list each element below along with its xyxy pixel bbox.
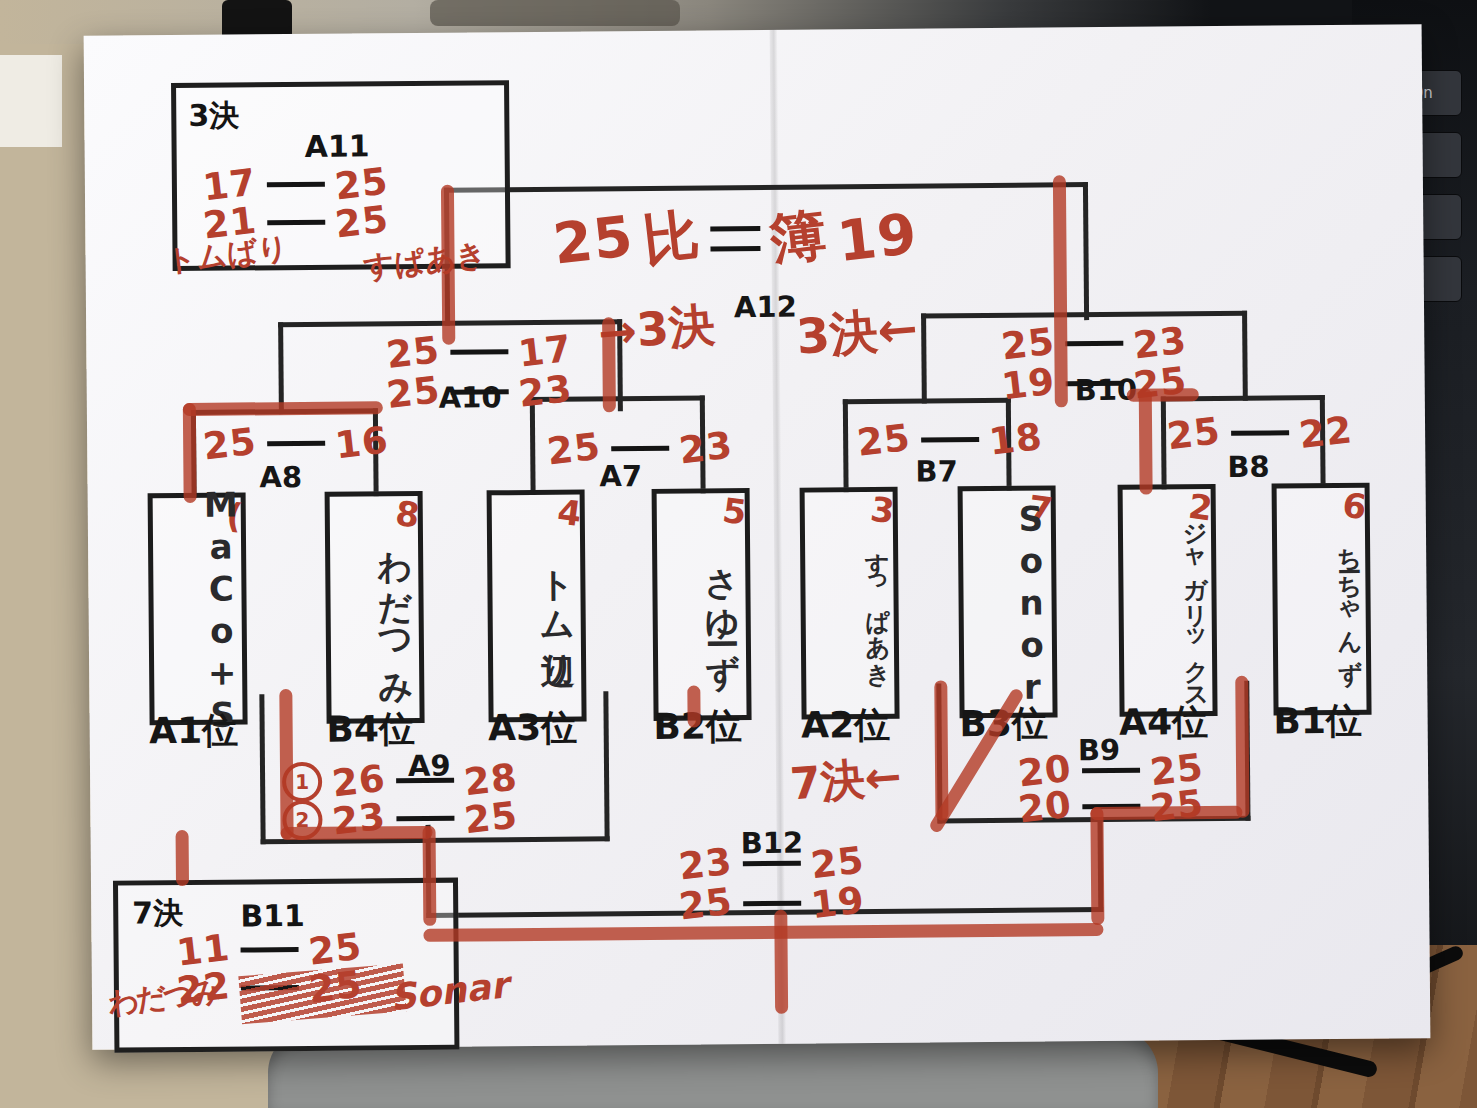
final-right-char: 簿 (766, 197, 831, 279)
score-value: 23 (676, 424, 734, 473)
marker-trace (281, 826, 433, 840)
final-left-char: 比 (639, 198, 704, 280)
rank-label-a2: A2位 (775, 701, 915, 751)
marker-trace (774, 910, 788, 1014)
team-name: Sonor (963, 498, 1053, 709)
score-value: 25 (855, 416, 913, 465)
keyboard-edge-shadow (430, 0, 680, 26)
rank-label-a4: A4位 (1093, 698, 1233, 748)
score-value: 25 (201, 420, 259, 469)
score-value: 25 (384, 368, 442, 417)
marker-trace (279, 689, 293, 839)
set-lines (710, 225, 760, 250)
marker-trace (1090, 807, 1104, 925)
team-box-jagarikkusu: 2 ジャガリックス (1118, 484, 1218, 717)
marker-trace (423, 923, 1103, 942)
score-value: 16 (332, 419, 390, 468)
team-box-chichanzu: 6 ちーちゃんず (1272, 483, 1372, 716)
score-value: 25 (545, 425, 603, 474)
rank-label-b1: B1位 (1247, 697, 1387, 747)
team-box-sayuzu: 5 さゆーず (652, 488, 752, 721)
score-a8: 25 16 (203, 421, 388, 466)
team-name: さゆーず (657, 501, 747, 712)
final-left-score: 25 (550, 203, 637, 277)
team-name: すっぱあき (805, 500, 895, 711)
marker-trace (176, 830, 189, 886)
score-value: 23 (516, 367, 574, 416)
match-label-a11: A11 (304, 128, 369, 164)
score-b12-set2: 25 19 (679, 881, 864, 926)
score-value: 19 (808, 878, 866, 927)
team-box-sonor: 7 Sonor (958, 485, 1058, 718)
third-place-note-right: 3決← (794, 296, 920, 369)
team-name: トム辺り (492, 503, 582, 714)
photo-of-tournament-bracket: PgDn ¥ む A12 A10 B10 A8 A7 B7 B8 A9 B9 B… (0, 0, 1477, 1108)
marker-trace (183, 403, 197, 503)
team-box-wadatsumi: 8 わだつみ (325, 491, 425, 724)
team-name: ジャガリックス (1123, 497, 1213, 708)
team-box-suppaaki: 3 すっぱあき (800, 487, 900, 720)
score-value: 25 (677, 880, 735, 929)
score-value: 25 (1165, 409, 1223, 458)
third-place-title: 3決 (188, 96, 239, 137)
score-value: 25 (332, 198, 390, 247)
score-value: 18 (986, 415, 1044, 464)
match-label-a12: A12 (734, 290, 797, 325)
score-value: 19 (999, 360, 1057, 409)
final-right-score: 19 (834, 200, 921, 274)
team-name: わだつみ (330, 504, 420, 715)
marker-trace (1139, 389, 1153, 495)
seventh-place-note: 7決← (788, 747, 904, 815)
team-box-tomuatari: 4 トム辺り (487, 490, 587, 723)
marker-trace (1235, 676, 1249, 818)
score-value: 20 (1016, 783, 1074, 832)
seventh-place-box: 7決 B11 11 25 22 25 (113, 878, 459, 1053)
score-b12-set1: 23 25 (679, 841, 864, 886)
score-a10-set2: 25 23 (387, 370, 572, 415)
score-b10-set1: 25 23 (1001, 321, 1186, 366)
white-card (0, 55, 62, 147)
score-final-a12: 25 比 簿 19 (553, 199, 918, 278)
bracket-sheet: A12 A10 B10 A8 A7 B7 B8 A9 B9 B12 25 比 簿… (84, 24, 1431, 1050)
marker-trace (183, 401, 383, 416)
marker-trace (1090, 806, 1242, 820)
marker-trace (423, 826, 437, 926)
score-value: 22 (1296, 408, 1354, 457)
score-b7: 25 18 (857, 418, 1042, 463)
marker-trace (441, 185, 455, 345)
marker-trace (602, 317, 616, 412)
score-value: 25 (462, 793, 520, 842)
marker-trace (1127, 388, 1199, 402)
marker-trace (687, 686, 700, 728)
marker-trace (1053, 175, 1068, 407)
score-b8: 25 22 (1167, 411, 1352, 456)
team-box-macots: ( MaCo+S (148, 492, 248, 725)
rank-label-a1: A1位 (123, 706, 263, 756)
team-name: ちーちゃんず (1277, 496, 1367, 707)
score-a10-set1: 25 17 (386, 330, 571, 375)
team-name: MaCo+S (153, 506, 243, 717)
rank-label-b4: B4位 (300, 705, 440, 755)
rank-label-a3: A3位 (462, 703, 602, 753)
score-a7: 25 23 (547, 426, 732, 471)
